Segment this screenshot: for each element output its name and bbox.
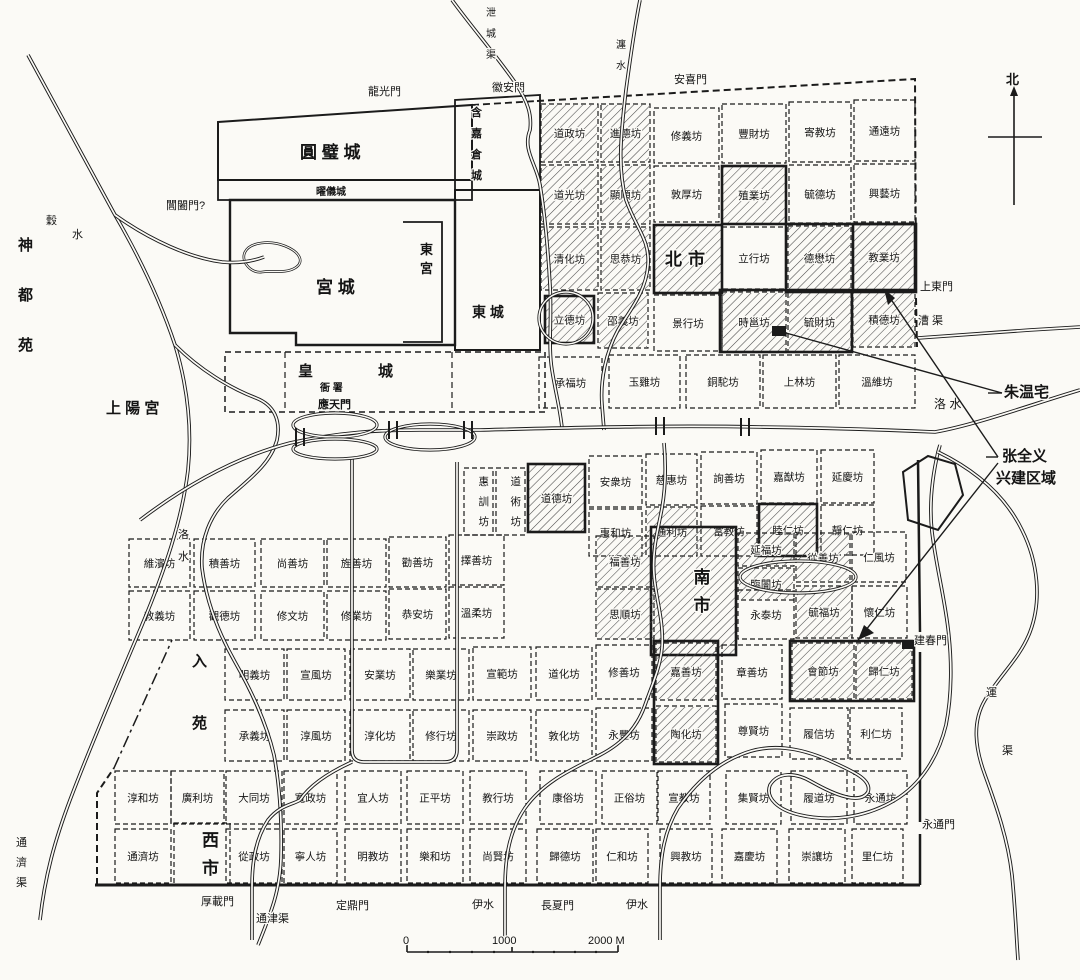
gate-label: 徽安門 — [492, 80, 525, 94]
ward-label: 嘉善坊 — [670, 666, 702, 679]
scale-bar-tick — [449, 951, 451, 953]
ward-label: 樂業坊 — [425, 669, 457, 682]
region-label: 應天門 — [318, 397, 351, 411]
ward-label: 立德坊 — [554, 314, 586, 327]
region-label: 衙 署 — [319, 381, 343, 394]
gate-label: 上東門 — [920, 280, 953, 293]
palace-pond — [244, 243, 300, 273]
gate-label: 定鼎門 — [336, 898, 369, 912]
ward-label: 通濟坊 — [127, 850, 159, 863]
ward-label: 修行坊 — [425, 730, 457, 743]
ward-label: 章善坊 — [736, 666, 768, 679]
scale-bar-tick — [595, 951, 597, 953]
river-path-inner — [28, 55, 189, 920]
region-label: 神都苑 — [17, 236, 33, 354]
map-svg: 道政坊進德坊修義坊豐財坊寄教坊通遠坊道光坊顯順坊敦厚坊殖業坊毓德坊興藝坊清化坊思… — [0, 0, 1080, 980]
ward-label: 毓福坊 — [808, 606, 840, 619]
ward-label: 積德坊 — [868, 314, 900, 327]
river-loop-inner — [385, 424, 475, 450]
ward-label: 溫維坊 — [861, 376, 893, 389]
ward-label: 履道坊 — [803, 792, 835, 805]
water-label: 伊水 — [472, 898, 494, 911]
river-path — [28, 55, 189, 920]
ward-label: 嘉慶坊 — [734, 850, 766, 863]
ward-label: 惠訓坊 — [479, 475, 490, 528]
river-loop-inner — [293, 439, 377, 459]
water-label: 運 — [986, 686, 997, 699]
ward-label: 立行坊 — [738, 252, 770, 265]
ward-label: 修文坊 — [277, 610, 309, 623]
market-label: 西市 — [202, 831, 219, 878]
ward-label: 正俗坊 — [614, 792, 646, 805]
scale-bar-tick — [553, 951, 555, 953]
ward-label: 福善坊 — [609, 556, 641, 569]
water-label: 漕 渠 — [918, 313, 943, 327]
ward-label: 宜人坊 — [357, 792, 389, 805]
water-label: 通濟渠 — [16, 836, 27, 889]
ward-label: 毓財坊 — [804, 316, 836, 329]
ward-label: 尊賢坊 — [738, 725, 770, 738]
annotation-label: 朱温宅 — [1004, 383, 1049, 401]
ward-hatch — [652, 528, 735, 654]
ward-label: 道政坊 — [554, 127, 586, 140]
ward-label: 會節坊 — [807, 665, 839, 678]
ward-label: 上林坊 — [784, 376, 816, 389]
ward-label: 安衆坊 — [600, 476, 632, 489]
gate-label: 龍光門 — [368, 84, 401, 98]
ward-label: 銅駝坊 — [707, 376, 739, 389]
ward-label: 教業坊 — [868, 251, 900, 264]
ward-label: 玉雞坊 — [629, 376, 661, 389]
water-label: 穀 — [46, 214, 57, 227]
ward-label: 仁風坊 — [863, 551, 895, 564]
water-label: 泄城渠 — [486, 6, 496, 61]
ward-label: 崇政坊 — [486, 730, 518, 743]
ward-label: 豐財坊 — [738, 128, 770, 141]
water-label: 瀍水 — [616, 38, 626, 72]
ward-label: 教行坊 — [482, 792, 514, 805]
ward-label: 里仁坊 — [862, 850, 894, 863]
gate-label: 安喜門 — [674, 72, 707, 86]
water-label: 洛 水 — [934, 396, 961, 411]
ward-label: 安業坊 — [364, 669, 396, 682]
compass-icon — [988, 90, 1042, 205]
ward-label: 道化坊 — [548, 668, 580, 681]
ward-label: 延福坊 — [750, 544, 782, 557]
river-path-inner — [918, 327, 1080, 338]
ward-label: 修義坊 — [671, 130, 703, 143]
ward-label: 淳化坊 — [364, 730, 396, 743]
region-label: 曜儀城 — [316, 185, 346, 198]
site-marker-square — [902, 640, 914, 649]
wall-path — [114, 640, 172, 768]
ward-label: 寧人坊 — [295, 850, 327, 863]
ward-label: 興藝坊 — [869, 187, 901, 200]
ward-label: 道德坊 — [541, 492, 573, 505]
ward-label: 大同坊 — [238, 792, 270, 805]
ward-label: 宣風坊 — [300, 669, 332, 682]
ward-label: 嘉猷坊 — [773, 471, 805, 484]
ward-label: 積善坊 — [209, 557, 241, 570]
ward-label: 歸德坊 — [549, 850, 581, 863]
ward-label: 履信坊 — [803, 728, 835, 741]
region-label: 城 — [378, 362, 393, 380]
scale-bar-label: 1000 — [492, 935, 516, 947]
market-label: 北市 — [665, 249, 711, 269]
ward-label: 殖業坊 — [738, 189, 770, 202]
ward-label: 溫柔坊 — [461, 607, 493, 620]
ward-label: 思順坊 — [609, 608, 641, 621]
ward-label: 道光坊 — [554, 189, 586, 202]
annotation-label: 张全义 — [1002, 447, 1047, 465]
ward-label: 宣範坊 — [486, 668, 518, 681]
ward-label: 承福坊 — [555, 377, 587, 390]
region-label: 入苑 — [192, 653, 207, 732]
ward-label: 陶化坊 — [670, 728, 702, 741]
region-label: 皇 — [298, 362, 313, 380]
annotation-label: 兴建区域 — [996, 469, 1056, 487]
wall-path — [455, 190, 540, 350]
wall-path — [285, 352, 452, 412]
ward-label: 正平坊 — [419, 792, 451, 805]
ward-label: 修業坊 — [341, 610, 373, 623]
ward-label: 興教坊 — [670, 850, 702, 863]
scale-bar-label: 0 — [403, 935, 409, 947]
ward-label: 詢善坊 — [713, 472, 745, 485]
region-label: 東 城 — [472, 304, 504, 320]
ward-label: 延慶坊 — [832, 471, 864, 484]
ward-label: 廣利坊 — [182, 792, 214, 805]
ward-label: 敦化坊 — [548, 730, 580, 743]
scale-bar-tick — [574, 951, 576, 953]
region-label: 東宮 — [420, 242, 433, 276]
water-label: 洛水 — [178, 527, 189, 563]
ward-label: 集賢坊 — [738, 792, 770, 805]
ward-label: 敦厚坊 — [671, 188, 703, 201]
region-label: 宮 城 — [316, 277, 355, 297]
water-label: 通津渠 — [256, 912, 289, 925]
ward-label: 淳風坊 — [300, 730, 332, 743]
ward-label: 勸善坊 — [402, 556, 434, 569]
scale-bar-tick — [471, 951, 473, 953]
luoyang-historical-map: 道政坊進德坊修義坊豐財坊寄教坊通遠坊道光坊顯順坊敦厚坊殖業坊毓德坊興藝坊清化坊思… — [0, 0, 1080, 980]
ward-label: 尚善坊 — [277, 557, 309, 570]
ward-label: 德懋坊 — [804, 252, 836, 265]
water-label: 渠 — [1002, 744, 1013, 757]
gate-label: 建春門 — [914, 633, 947, 647]
palace-pond-inner — [244, 243, 300, 273]
ward-label: 康俗坊 — [552, 792, 584, 805]
wall-path — [403, 222, 442, 342]
ward-label: 通遠坊 — [869, 125, 901, 138]
gate-label: 長夏門 — [541, 899, 574, 912]
ward-label: 崇讓坊 — [801, 850, 833, 863]
ward-label: 慈惠坊 — [656, 474, 688, 487]
ward-label: 永泰坊 — [750, 609, 782, 622]
scale-bar-tick — [427, 951, 429, 953]
ward-label: 仁和坊 — [606, 850, 638, 863]
ward-label: 進德坊 — [610, 127, 642, 140]
ward-label: 修善坊 — [608, 666, 640, 679]
wall-path — [97, 768, 114, 885]
ward-label: 樂和坊 — [419, 850, 451, 863]
region-label: 上 陽 宮 — [106, 399, 159, 417]
scale-bar-label: 2000 M — [588, 935, 625, 947]
ward-label: 擇善坊 — [461, 554, 493, 567]
water-label: 伊水 — [626, 898, 648, 911]
ward-label: 淳和坊 — [127, 792, 159, 805]
ward-label: 道術坊 — [511, 475, 522, 528]
ward-label: 旌善坊 — [341, 557, 373, 570]
scale-bar-tick — [532, 951, 534, 953]
ward-label: 利仁坊 — [860, 728, 892, 741]
gate-label: 永通門 — [922, 817, 955, 831]
site-marker-square — [772, 326, 786, 336]
scale-bar-tick — [493, 951, 495, 953]
ward-label: 景行坊 — [672, 317, 704, 330]
ward-label: 歸仁坊 — [868, 665, 900, 678]
compass-icon-arrow — [1010, 86, 1018, 96]
ward-label: 寄教坊 — [804, 126, 836, 139]
ward-label: 時邕坊 — [738, 316, 770, 329]
gate-label: 厚載門 — [201, 895, 234, 908]
ward-label: 明教坊 — [357, 850, 389, 863]
gate-label: 閶闔門? — [166, 199, 205, 212]
ward-label: 思恭坊 — [610, 253, 642, 266]
ward-label: 維濱坊 — [144, 557, 176, 570]
region-label: 圓 璧 城 — [300, 142, 360, 162]
wall-path — [225, 352, 545, 412]
compass-north-label: 北 — [1006, 72, 1019, 87]
river-path — [938, 452, 1037, 960]
ward-label: 清化坊 — [554, 253, 586, 266]
ward-label: 恭安坊 — [402, 608, 434, 621]
water-label: 水 — [72, 228, 83, 241]
ward-label: 毓德坊 — [804, 188, 836, 201]
